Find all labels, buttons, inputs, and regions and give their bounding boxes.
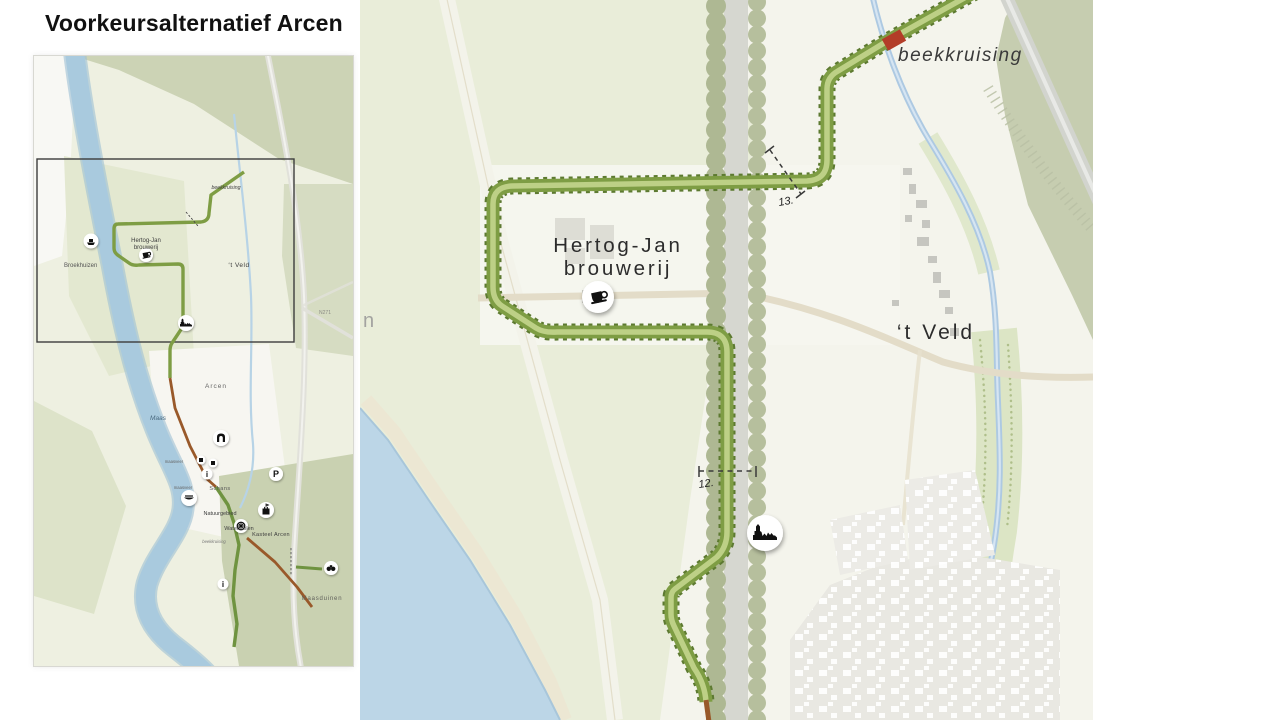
label-watermolen: Watermolen [224,526,253,532]
label-n271: N271 [319,310,331,316]
beek-crossing-segment [885,35,903,45]
label-kasteel-arcen: Kasteel Arcen [252,532,290,538]
label-maasveer-2: maasveer [174,485,193,490]
label-beekkruising-zuid: beekkruising [202,539,226,544]
ferry-marker [84,234,99,249]
label-edge-fragment: n [363,310,374,332]
overview-map: i P [33,55,354,667]
label-t-veld: ‘t Veld [228,262,249,269]
brewery-cafe-marker [582,281,614,313]
label-brouwerij: brouwerij [564,257,672,280]
marker-circle [747,515,783,551]
label-arcen: Arcen [205,383,227,390]
label-beekkruising-noord: beekkruising [211,185,240,191]
overview-map-canvas: i P [34,56,353,666]
info-icon: i [206,470,208,479]
label-hertog-jan: Hertog-Jan [553,234,682,257]
detail-map: 13. 12. [360,0,1280,720]
label-broekhuizen: Broekhuizen [64,263,97,269]
info-marker-1: i [202,469,213,480]
poi-dot-marker-2 [209,459,218,468]
label-brouwerij: brouwerij [134,245,158,251]
label-schans: Schans [209,486,230,492]
label-maasveer-1: maasveer [165,459,184,464]
label-natuurgebied: Natuurgebied [203,511,236,517]
parking-marker: P [269,467,283,481]
page-title: Voorkeursalternatief Arcen [45,10,343,37]
label-maasduinen: Maasduinen [302,596,343,602]
label-maas: Maas [150,415,167,422]
label-beekkruising: beekkruising [898,45,1023,66]
label-t-veld: ‘t Veld [897,321,975,344]
poi-icon [199,458,203,462]
route-brown-tail [706,700,709,720]
boat-marker [181,490,197,506]
info-icon: i [222,580,224,589]
info-marker-2: i [218,579,229,590]
poi-icon [211,461,215,465]
route-green-maasduinen [296,567,322,569]
gate-marker [213,430,229,446]
village-marker-ov [178,315,194,331]
detail-map-canvas: 13. 12. [360,0,1280,720]
castle-marker [258,502,274,518]
viewpoint-marker [324,561,338,575]
parking-icon: P [273,469,279,479]
forest-southeast [219,454,353,666]
page: Voorkeursalternatief Arcen [0,0,1280,720]
section-label-12: 12. [698,477,715,491]
poi-dot-marker-1 [197,456,206,465]
label-hertog-jan: Hertog-Jan [131,238,161,244]
village-marker [747,515,783,551]
